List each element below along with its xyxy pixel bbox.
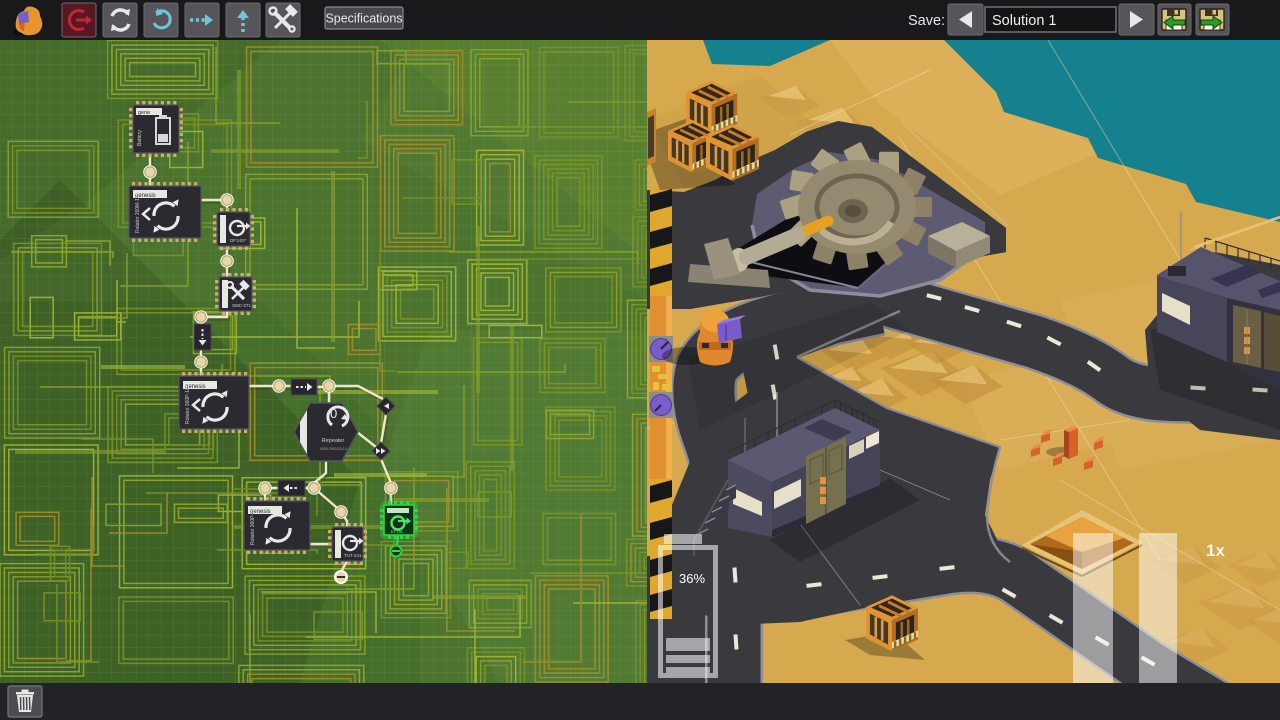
svg-text:Rotator 360P-121: Rotator 360P-121	[250, 505, 256, 545]
svg-text:Rotator 360P-101: Rotator 360P-101	[185, 384, 191, 424]
svg-text:1450-RB112/14: 1450-RB112/14	[319, 446, 348, 451]
svg-text:1x: 1x	[1206, 541, 1225, 560]
svg-text:Solution 1: Solution 1	[992, 13, 1057, 29]
svg-text:DF1407: DF1407	[230, 238, 247, 243]
svg-text:gene: gene	[138, 110, 150, 116]
svg-text:Repeater: Repeater	[322, 438, 345, 444]
svg-text:Save:: Save:	[908, 13, 945, 29]
svg-text:SMC-071: SMC-071	[232, 303, 252, 308]
svg-text:TUT-241: TUT-241	[344, 553, 362, 558]
svg-text:EF130: EF130	[391, 529, 404, 534]
svg-text:Rotator 360M-171: Rotator 360M-171	[135, 192, 141, 233]
svg-text:Specifications: Specifications	[325, 12, 402, 26]
svg-text:36%: 36%	[679, 571, 705, 586]
svg-text:Battery: Battery	[137, 130, 143, 146]
